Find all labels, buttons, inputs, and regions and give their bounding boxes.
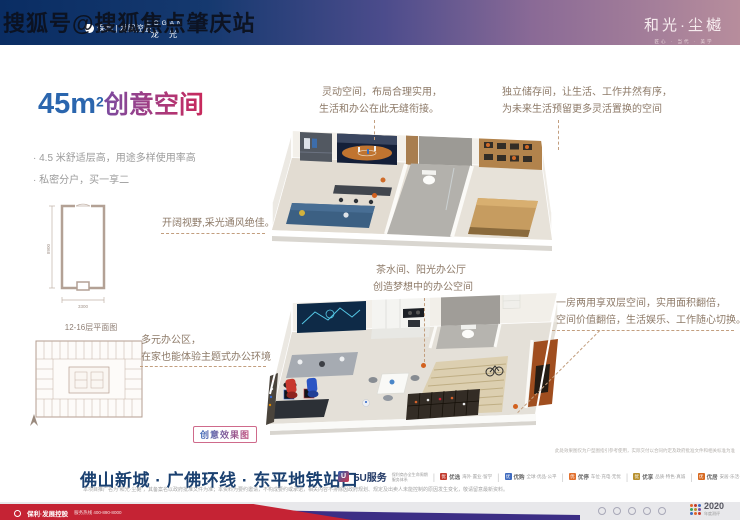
annotation-dual-line2: 空间价值翻倍，生活娱乐、工作随心切换。	[556, 312, 740, 329]
service-desc-4: 品质·特色·真诚	[655, 474, 685, 480]
poly-seal-icon	[14, 510, 21, 517]
hotline-number: 服务热线 400-890-8000	[74, 510, 121, 516]
5u-logo-icon: U	[338, 471, 349, 482]
building-floor-plate	[33, 333, 145, 432]
title-sup: 2	[96, 94, 104, 110]
5u-sub-line1: 保利商办全生命周期	[392, 472, 428, 477]
annotation-view: 开阔视野,采光通风绝佳。	[162, 215, 275, 232]
service-item-4: 优 优享 品质·特色·真诚	[633, 473, 685, 481]
page-title: 45m2创意空间	[38, 85, 204, 121]
award-logo: 2020 年度测评	[690, 502, 724, 517]
project-brand-tagline: 匠心 · 当代 · 美学	[644, 39, 724, 45]
service-icon-2: 优	[505, 473, 512, 480]
service-tag-1: 优选	[449, 473, 460, 481]
5u-sub-line2: 服务体系	[392, 477, 428, 482]
service-desc-5: 安居·乐活·多维	[720, 474, 740, 480]
selling-point-2: · 私密分户，买一享二	[33, 171, 129, 186]
annotation-flex-space-line1: 灵动空间，布局合理实用，	[322, 84, 442, 101]
service-item-5: 优 优居 安居·乐活·多维	[698, 473, 740, 481]
project-brand-name: 和光·尘樾	[644, 14, 724, 35]
service-tag-4: 优享	[642, 473, 653, 481]
render-type-badge: 创意效果图	[193, 426, 257, 443]
render-top-apartment	[246, 118, 601, 268]
service-tag-2: 优购	[514, 473, 525, 481]
annotation-dual-line1: 一房两用享双层空间，实用面积翻倍，	[556, 295, 726, 312]
service-item-3: 优 优停 车位·充电·无忧	[569, 473, 621, 481]
leader-line-office	[140, 366, 266, 367]
service-item-2: 优 优购 全球·优品·公平	[505, 473, 557, 481]
north-compass-icon	[28, 414, 40, 428]
leader-line-dual	[552, 330, 734, 331]
annotation-tea-line2: 创造梦想中的办公空间	[373, 279, 473, 296]
service-icon-5: 优	[698, 473, 705, 480]
render-bottom-apartment	[240, 284, 610, 454]
service-icon-1: 优	[440, 473, 447, 480]
service-icon-4: 优	[633, 473, 640, 480]
title-area-number: 45m	[38, 88, 96, 120]
seal-stamp	[658, 507, 666, 515]
leader-line-view	[161, 233, 265, 234]
leader-line-tea	[424, 298, 425, 362]
service-tag-3: 优停	[578, 473, 589, 481]
floor-plate-label: 12-16层平面图	[36, 322, 146, 333]
service-desc-1: 海外·置业·留学	[462, 474, 492, 480]
footer-hotline: 保利·发展控股 服务热线 400-890-8000	[14, 508, 121, 518]
service-tag-5: 优居	[707, 473, 718, 481]
title-text: 创意空间	[104, 91, 204, 119]
service-desc-2: 全球·优品·公平	[527, 474, 557, 480]
divider: |	[433, 472, 435, 482]
footer-disclaimer: 本项目推广名为“和光·尘樾”，其备案名以政府批准文件为准；本资料为要约邀请，不构…	[83, 486, 733, 493]
annotation-storage-line1: 独立储存间，让生活、工作井然有序，	[502, 84, 672, 101]
annotation-office-line2: 在家也能体验主题式办公环境	[141, 349, 271, 366]
annotation-tea-line1: 茶水间、阳光办公厅	[376, 262, 466, 279]
divider: |	[562, 472, 564, 482]
service-item-1: 优 优选 海外·置业·留学	[440, 473, 492, 481]
seal-stamp	[613, 507, 621, 515]
service-system-row: U 5U服务 保利商办全生命周期 服务体系 | 优 优选 海外·置业·留学 | …	[338, 469, 740, 484]
unit-dim-height: 8900	[46, 243, 51, 254]
unit-dim-width: 3300	[78, 304, 89, 309]
leader-dot-dual	[513, 404, 518, 409]
annotation-storage-line2: 为未来生活预留更多灵活置换的空间	[502, 101, 662, 118]
service-icon-3: 优	[569, 473, 576, 480]
unit-floorplan: 8900 3300	[46, 196, 121, 314]
divider: |	[626, 472, 628, 482]
service-desc-3: 车位·充电·无忧	[591, 474, 621, 480]
hotline-brand: 保利·发展控股	[27, 508, 68, 518]
render-disclaimer: 此处效果图仅为户型图指引参考使用，实际交付以合同约定及政府批准文件和相关标准为准	[495, 448, 735, 454]
divider: |	[497, 472, 499, 482]
award-dots-icon	[690, 504, 701, 515]
leader-dot-flex	[372, 193, 377, 198]
annotation-flex-space-line2: 生活和办公在此无缝衔接。	[319, 101, 439, 118]
seal-stamp	[628, 507, 636, 515]
leader-line-storage	[558, 120, 559, 150]
annotation-office-line1: 多元办公区，	[141, 332, 201, 349]
divider: |	[690, 472, 692, 482]
selling-point-1: · 4.5 米舒适层高，用途多样使用率高	[33, 149, 196, 164]
promo-poster: 保利 | 发展控股 LOGAN 龙 光 和光·尘樾 匠心 · 当代 · 美学 搜…	[0, 0, 740, 520]
award-year: 2020	[704, 502, 724, 511]
certification-seals	[598, 507, 666, 515]
award-sub: 年度测评	[704, 511, 724, 517]
leader-dot-tea	[421, 363, 426, 368]
project-brand: 和光·尘樾 匠心 · 当代 · 美学	[644, 14, 724, 45]
sohu-watermark: 搜狐号@搜狐焦点肇庆站	[3, 6, 255, 38]
leader-line-flex	[374, 120, 375, 140]
5u-brand: 5U服务	[354, 469, 387, 484]
seal-stamp	[643, 507, 651, 515]
5u-brand-sub: 保利商办全生命周期 服务体系	[392, 472, 428, 482]
seal-stamp	[598, 507, 606, 515]
